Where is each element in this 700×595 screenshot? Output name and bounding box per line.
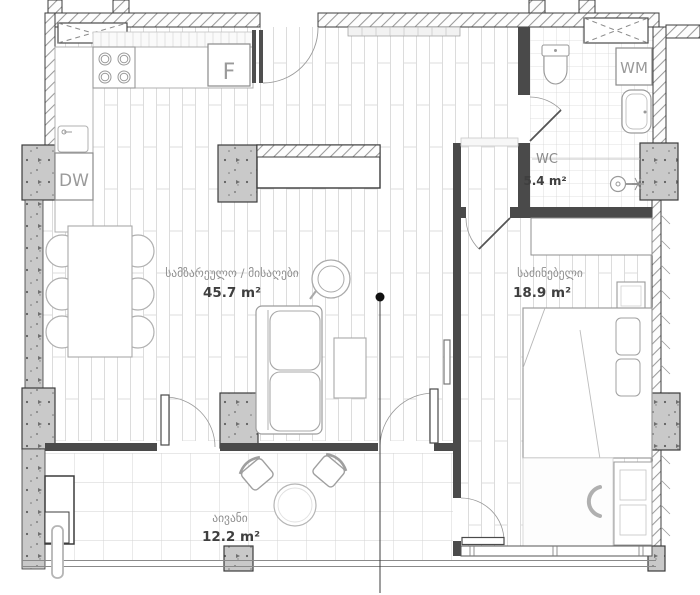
wc-name: WC [536,152,558,167]
washing-machine-label: WM [620,59,648,77]
fridge-label: F [223,60,236,85]
concrete-wall-balcony-left [22,449,45,569]
stove-icon [93,47,135,88]
sofa-icon [256,306,322,434]
pillow [616,359,640,396]
balcony-table-icon [274,484,316,526]
bedroom-rug [523,458,613,552]
living-room-name: სამზარეულო / მისაღები [165,266,299,280]
floor-plan-svg: F DW [0,0,700,595]
desk [614,462,652,545]
toilet-icon [542,45,569,84]
dining-table [68,226,132,357]
nightstand [617,282,645,310]
concrete-wall-left [25,200,43,388]
wall-hatch-ticks [661,215,670,536]
column [218,145,257,202]
balcony-railing [22,561,656,567]
pillow [616,318,640,355]
bedroom-area: 18.9 m² [513,285,571,301]
wardrobe [531,218,652,255]
bedroom-name: საძინებელი [517,266,583,280]
floor-plan: F DW [0,0,700,595]
column [224,546,253,571]
column [220,393,258,448]
coffee-table [334,338,366,398]
balcony-area: 12.2 m² [202,529,260,545]
island-cabinet [257,145,380,188]
dishwasher-label: DW [59,171,89,191]
section-dot-icon [376,293,385,302]
balcony-name: აივანი [212,511,248,525]
wc-area: 5.4 m² [523,174,566,188]
hall-beam [461,138,518,146]
hallway-floor [461,27,518,218]
drain-pipe-icon [52,526,63,578]
backsplash-band [348,27,460,36]
vent-shaft-icon [584,18,648,43]
kitchen-sink-icon [58,126,88,152]
column [640,143,678,200]
dining-set [46,226,154,357]
bedroom-window [461,546,652,556]
bathroom-sink-icon [622,90,651,133]
column [22,145,55,200]
column [22,388,55,449]
tv-icon [444,340,450,384]
living-room-area: 45.7 m² [203,285,261,301]
